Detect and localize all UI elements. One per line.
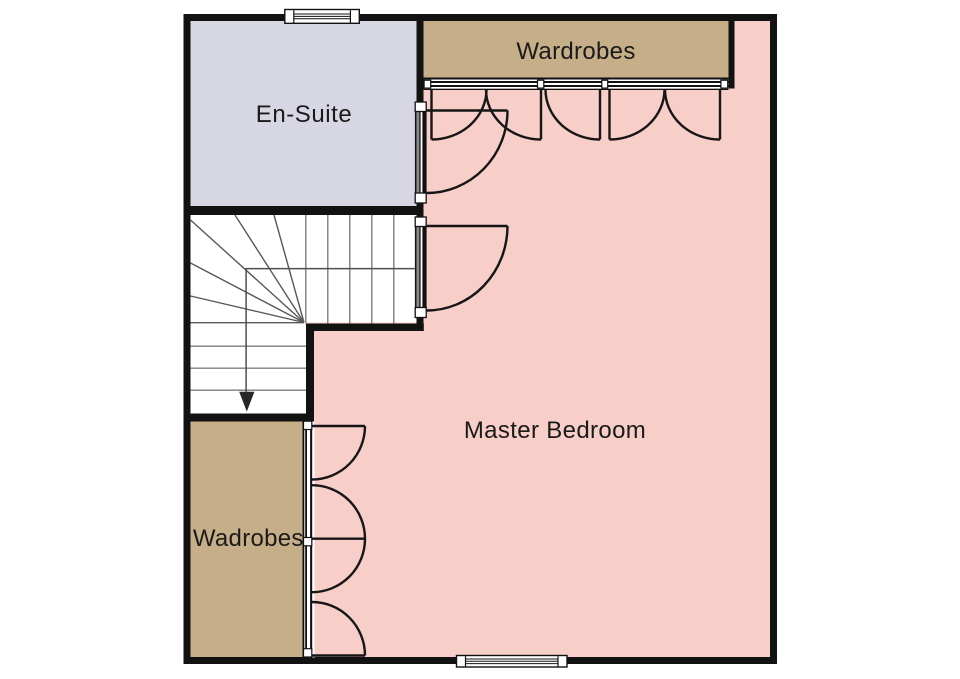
svg-text:En-Suite: En-Suite — [256, 101, 352, 128]
svg-text:Wardrobes: Wardrobes — [516, 38, 635, 65]
svg-text:Wadrobes: Wadrobes — [193, 525, 304, 552]
svg-text:Master Bedroom: Master Bedroom — [464, 417, 646, 444]
